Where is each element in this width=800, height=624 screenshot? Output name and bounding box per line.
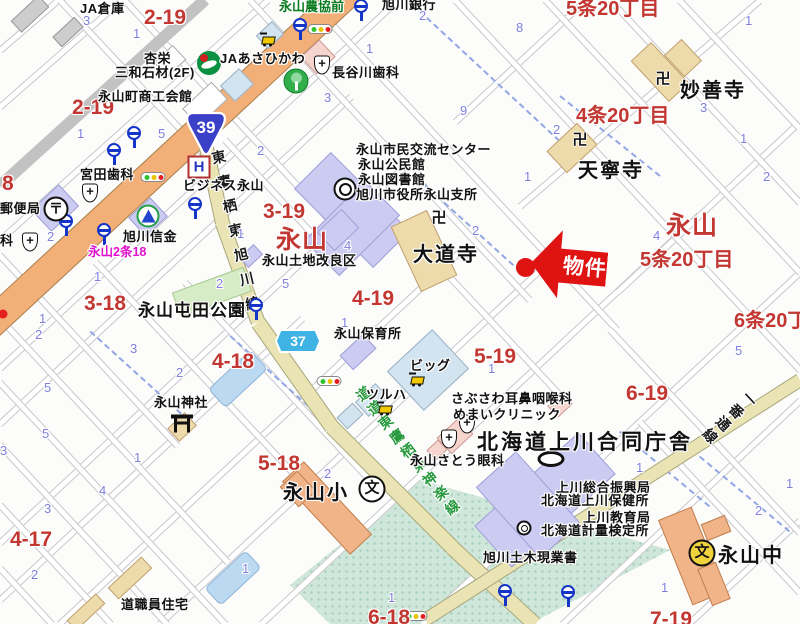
map-label: 2-19 [144,6,186,30]
hospital-icon [314,56,330,75]
block-number: 1 [636,460,643,475]
map-label: ツルハ [366,384,407,403]
map-label: 6-18 [368,606,410,624]
map-label: 天寧寺 [578,154,644,183]
map-label: 永山中 [718,539,784,568]
map-label: 北海道上川合同庁舎 [477,426,693,456]
map-label: ビッグ [410,355,451,374]
shop-cart-icon [409,373,425,388]
bus-stop-icon [293,18,307,32]
block-number: 1 [39,311,46,326]
map-label: 永山土地改良区 [262,250,357,269]
map-label: 5条20丁目 [566,0,659,21]
map-label: 科 [0,230,14,249]
block-number: 5 [42,426,49,441]
temple-icon [431,211,446,226]
map-label: 大道寺 [413,238,479,267]
map-label: 5条20丁目 [640,243,733,272]
map-label: 4-18 [212,350,254,374]
map-label: 道職員住宅 [121,594,189,613]
block-number: 4 [99,483,106,498]
block-number: 1 [388,590,395,605]
block-number: 1 [94,269,101,284]
block-number: 3 [44,501,51,516]
map-label: 旭川土木現業書 [483,547,578,566]
traffic-light-icon [141,172,166,182]
bus-stop-icon [498,584,512,598]
bus-stop-icon [188,197,202,211]
traffic-light-icon [317,376,342,386]
map-label: 5-18 [258,452,300,476]
route-39-number: 39 [179,118,233,138]
bus-stop-icon [107,143,121,157]
block-number: 1 [366,41,373,56]
block-number: 1 [524,169,531,184]
block-number: 2 [176,365,183,380]
block-number: 2 [763,169,770,184]
route-37-number: 37 [275,331,321,351]
map-label: 4条20丁目 [576,99,669,128]
map-label: ビジネス永山 [183,175,264,194]
map-label: 旭川銀行 [382,0,436,13]
map-label: JAあさひかわ [220,48,305,67]
block-number: 2 [472,223,479,238]
shinkin-bank-icon [137,205,160,228]
map-label: 5-19 [474,345,516,369]
block-number: 1 [77,126,84,141]
map-label: 7-19 [650,608,692,624]
map-label: 8 [2,172,14,196]
map-label: 三和石材(2F) [115,62,195,81]
bus-stop-icon [561,585,575,599]
map-label: 永山 [666,206,718,242]
block-number: 5 [735,343,742,358]
block-number: 1 [134,450,141,465]
block-number: 1 [740,131,747,146]
block-number: 2 [35,327,42,342]
block-number: 1 [133,26,140,41]
temple-icon [572,133,587,148]
bus-stop-icon [97,223,111,237]
block-number: 3 [324,90,331,105]
block-number: 1 [237,226,244,241]
bus-stop-icon [354,0,368,13]
greenery-icon [284,69,309,94]
block-number: 2 [216,276,223,291]
map-label: 4-17 [10,528,52,552]
map-label: 6-19 [626,382,668,406]
gov-small-icon [517,521,532,536]
city-office-icon [334,178,357,201]
map-label: 永山2条18 [88,241,146,260]
city-map: 39 37 物件 3128113923112152211125413522514… [0,0,800,624]
temple-icon [655,72,670,87]
bus-stop-icon [249,298,263,312]
block-number: 3 [0,443,7,458]
school-elem-icon [359,476,386,503]
block-number: 3 [130,341,137,356]
school-jr-icon [689,540,716,567]
map-label: 宮田歯科 [80,164,134,183]
block-boundary-line [419,10,560,141]
shrine-icon [171,415,193,434]
block-number: 9 [460,103,467,118]
block-number: 8 [516,20,523,35]
map-label: めまいクリニック [453,404,561,423]
block-number: 2 [31,567,38,582]
map-label: 永山屯田公園 [138,296,246,321]
ja-bank-icon [197,51,221,75]
block-number: 5 [282,276,289,291]
map-label: 北海道計量検定所 [541,520,649,539]
map-label: 永山農協前 [279,0,344,15]
block-number: 2 [755,503,762,518]
block-number: 4 [653,228,660,243]
traffic-light-icon [308,24,333,34]
block-number: 5 [44,380,51,395]
bus-stop-icon [127,126,141,140]
map-label: 旭川市役所永山支所 [356,184,478,203]
map-label: 6条20丁目 [734,304,800,333]
map-label: 永山小 [283,476,349,505]
block-number: 2 [553,122,560,137]
post-office-icon [44,197,69,222]
shop-cart-icon [260,33,276,48]
property-marker-dot [516,258,535,277]
map-label: 永山保育所 [334,323,402,342]
block-number: 1 [661,580,668,595]
block-number: 1 [745,13,752,28]
block-number: 5 [158,126,165,141]
block-number: 1 [242,561,249,576]
map-label: 永山町商工会館 [98,86,193,105]
map-label: JA倉庫 [80,0,125,17]
map-label: 3-18 [84,292,126,316]
block-number: 1 [786,476,793,491]
route-39-shield: 39 [179,109,233,161]
route-37-shield: 37 [275,329,321,353]
map-label: 妙善寺 [680,74,746,103]
property-marker-label: 物件 [562,250,608,284]
hospital-icon [22,233,38,252]
shop-cart-icon [377,402,393,417]
property-marker-arrow: 物件 [528,228,610,302]
map-label: 郵便局 [0,198,41,217]
map-label: 長谷川歯科 [332,62,400,81]
block-number: 2 [257,143,264,158]
hospital-icon [82,184,98,203]
map-label: 永山神社 [154,392,208,411]
map-label: 4-19 [352,287,394,311]
block-number: 2 [47,229,54,244]
